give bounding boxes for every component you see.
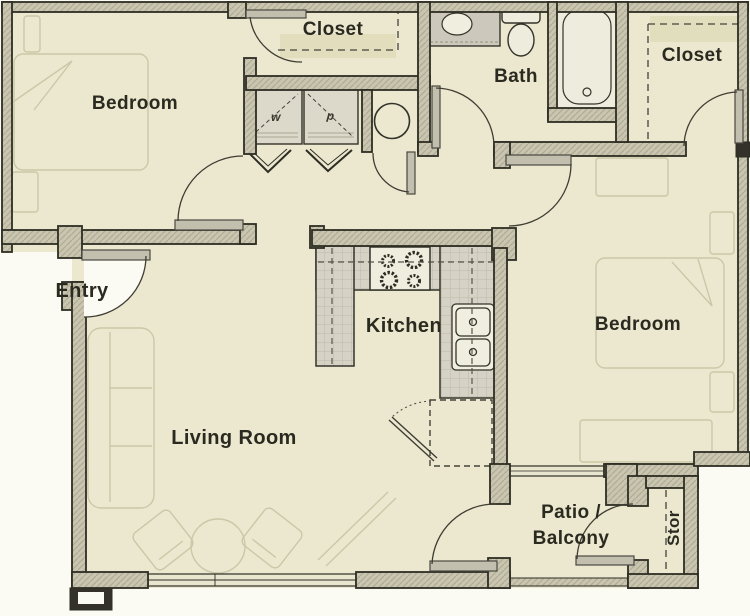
wall-top	[2, 2, 748, 12]
wall-bedroom2-south-jog	[694, 452, 750, 466]
label-patio-balcony: Patio / Balcony	[505, 500, 637, 552]
label-entry: Entry	[42, 279, 122, 303]
wall-right	[738, 2, 748, 465]
wall-left	[2, 2, 12, 252]
label-washer: w	[266, 110, 286, 124]
wall-living-south-a	[72, 572, 148, 588]
wall-bedroom1-south	[2, 230, 254, 244]
pier-notch	[78, 592, 104, 604]
wall-closet1-south	[246, 76, 430, 90]
wall-bath-closet2-divider	[616, 2, 628, 142]
post-entry-upper	[58, 226, 82, 258]
wall-heater-niche-west	[362, 90, 372, 152]
entry-door-leaf	[82, 250, 150, 260]
heater-door-leaf	[407, 152, 415, 194]
label-storage: Stor	[664, 498, 694, 558]
post-closet1-door	[228, 2, 246, 18]
label-bath: Bath	[476, 66, 556, 89]
bath-door-leaf	[432, 86, 440, 148]
bedroom1-door-leaf	[175, 220, 243, 230]
label-dryer: d	[319, 109, 340, 125]
wall-kitchen-east	[494, 248, 507, 468]
water-heater-icon	[375, 104, 410, 139]
closet1-door-leaf	[246, 10, 306, 18]
patio-door-leaf	[430, 561, 497, 571]
wall-storage-south	[628, 574, 698, 588]
wall-living-west	[72, 282, 86, 588]
label-patio-line2: Balcony	[505, 526, 637, 552]
label-patio-line1: Patio /	[505, 500, 637, 526]
patio-rail	[508, 578, 632, 586]
wall-bath-west	[418, 2, 430, 152]
floor-plan: Bedroom Closet Bath Closet Entry Kitchen…	[0, 0, 750, 616]
label-living-room: Living Room	[144, 426, 324, 450]
label-closet-right: Closet	[632, 45, 750, 68]
label-kitchen: Kitchen	[334, 314, 474, 338]
wall-tub-west	[548, 2, 557, 120]
bedroom2-door-leaf	[506, 155, 571, 165]
label-bedroom-right: Bedroom	[568, 314, 708, 337]
closet2-door-leaf	[735, 90, 743, 143]
hinge-closet2	[736, 142, 750, 157]
label-closet-top: Closet	[273, 19, 393, 42]
wall-closet1-west	[244, 58, 256, 154]
closet-rod-band-right	[650, 16, 738, 42]
wall-kitchen-north	[312, 230, 498, 246]
bathtub-icon	[556, 4, 618, 110]
label-bedroom-left: Bedroom	[65, 93, 205, 116]
post-patio-west-upper	[490, 464, 510, 504]
storage-door-leaf	[576, 556, 634, 565]
wall-living-south-b	[356, 572, 510, 588]
range-burners-icon	[370, 247, 430, 290]
wall-bath-south-b	[494, 142, 686, 156]
